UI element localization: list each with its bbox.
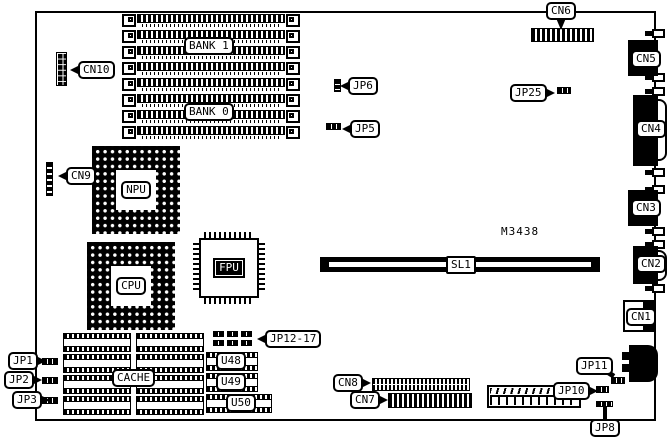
- cn3-label: CN3: [631, 199, 661, 217]
- fpu-pins-left: [193, 243, 199, 293]
- jp12-17-jumper: [241, 331, 252, 337]
- npu-socket: NPU: [92, 146, 180, 234]
- cn10-header: [56, 52, 67, 86]
- din-connector: [629, 345, 658, 382]
- simm-socket: [122, 14, 300, 27]
- mounting-tab: [652, 227, 665, 236]
- jp11-label: JP11: [576, 357, 613, 375]
- jp12-17-jumper: [241, 340, 252, 346]
- fpu-pins-bottom: [204, 298, 254, 304]
- cache-chip: [63, 396, 131, 415]
- cache-chip: [136, 396, 204, 415]
- cn10-label: CN10: [78, 61, 115, 79]
- jp5-label: JP5: [350, 120, 380, 138]
- cache-label: CACHE: [112, 369, 155, 387]
- cn6-connector: [531, 28, 594, 42]
- cache-chip: [63, 333, 131, 352]
- mounting-tab: [652, 29, 665, 38]
- jp3-label: JP3: [12, 391, 42, 409]
- cn6-label: CN6: [546, 2, 576, 20]
- u49-label: U49: [216, 373, 246, 391]
- fpu-pins-right: [259, 243, 265, 293]
- npu-well: NPU: [116, 170, 156, 210]
- jp25-label: JP25: [510, 84, 547, 102]
- jp8-label: JP8: [590, 419, 620, 437]
- cn8-label: CN8: [333, 374, 363, 392]
- jp1-label: JP1: [8, 352, 38, 370]
- fpu-label: FPU: [213, 258, 245, 278]
- jp2-jumper: [42, 377, 58, 384]
- cpu-label: CPU: [116, 277, 146, 295]
- jp12-17-jumper: [227, 340, 238, 346]
- u48-label: U48: [216, 352, 246, 370]
- jp6-label: JP6: [348, 77, 378, 95]
- jp12-17-jumper: [213, 340, 224, 346]
- cn8-connector: [372, 378, 470, 391]
- mounting-tab: [652, 168, 665, 177]
- cn7-connector: [388, 393, 472, 408]
- simm-socket: [122, 62, 300, 75]
- simm-socket: [122, 78, 300, 91]
- cn7-label: CN7: [350, 391, 380, 409]
- bank1-label: BANK 1: [184, 37, 234, 55]
- simm-socket: [122, 126, 300, 139]
- cache-chip: [136, 333, 204, 352]
- cn5-label: CN5: [631, 50, 661, 68]
- cn9-header: [46, 162, 53, 196]
- jp5-jumper: [326, 123, 341, 130]
- npu-label: NPU: [121, 181, 151, 199]
- jp12-17-jumper: [213, 331, 224, 337]
- jp2-label: JP2: [4, 371, 34, 389]
- jp10-jumper: [596, 386, 609, 393]
- jp25-jumper: [557, 87, 571, 94]
- cn9-label: CN9: [66, 167, 96, 185]
- cn4-label: CN4: [636, 120, 666, 138]
- jp10-label: JP10: [553, 382, 590, 400]
- mounting-tab: [652, 284, 665, 293]
- bank0-label: BANK 0: [184, 103, 234, 121]
- u50-label: U50: [226, 394, 256, 412]
- din-tab: [622, 352, 629, 360]
- sl1-label: SL1: [446, 256, 476, 274]
- cpu-well: CPU: [111, 266, 151, 306]
- din-tab: [622, 364, 629, 372]
- fpu-pins-top: [204, 232, 254, 238]
- cn1-label: CN1: [626, 308, 656, 326]
- cn2-label: CN2: [636, 255, 666, 273]
- jp12-17-label: JP12-17: [265, 330, 321, 348]
- jp11-jumper: [611, 377, 625, 384]
- fpu-chip: FPU: [199, 238, 259, 298]
- cpu-socket: CPU: [87, 242, 175, 330]
- motherboard-diagram: BANK 1 BANK 0 CN10 CN9 NPU CPU FPU JP6 J…: [0, 0, 670, 437]
- part-number-text: M3438: [501, 226, 539, 238]
- jp12-17-jumper: [227, 331, 238, 337]
